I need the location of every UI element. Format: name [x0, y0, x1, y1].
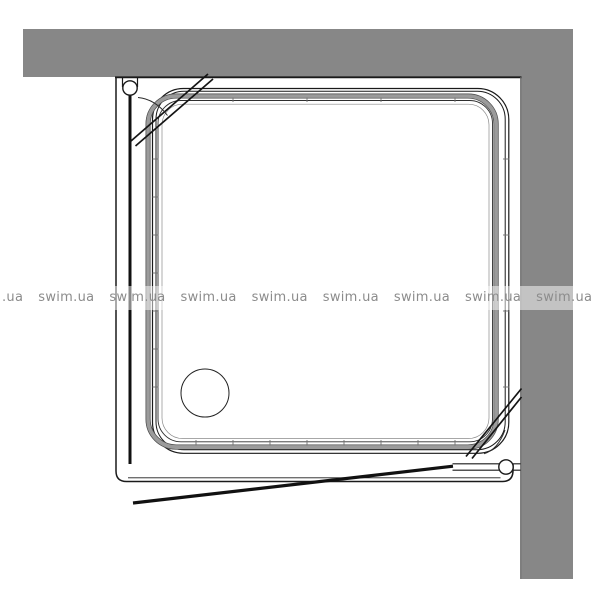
bottom-hinge-circle: [499, 460, 513, 474]
screenshot-canvas: .ua swim.ua swim.ua swim.ua swim.ua swim…: [0, 0, 600, 600]
tray-outer-flange: [116, 77, 513, 482]
open-door-line: [133, 466, 453, 503]
drain-circle: [181, 369, 229, 417]
top-left-door-diagonal-2: [136, 79, 214, 146]
top-hinge-circle: [123, 81, 137, 95]
top-wall: [23, 29, 573, 77]
technical-drawing: [0, 0, 600, 600]
top-left-door-diagonal-1: [131, 74, 208, 141]
right-wall: [521, 77, 573, 579]
